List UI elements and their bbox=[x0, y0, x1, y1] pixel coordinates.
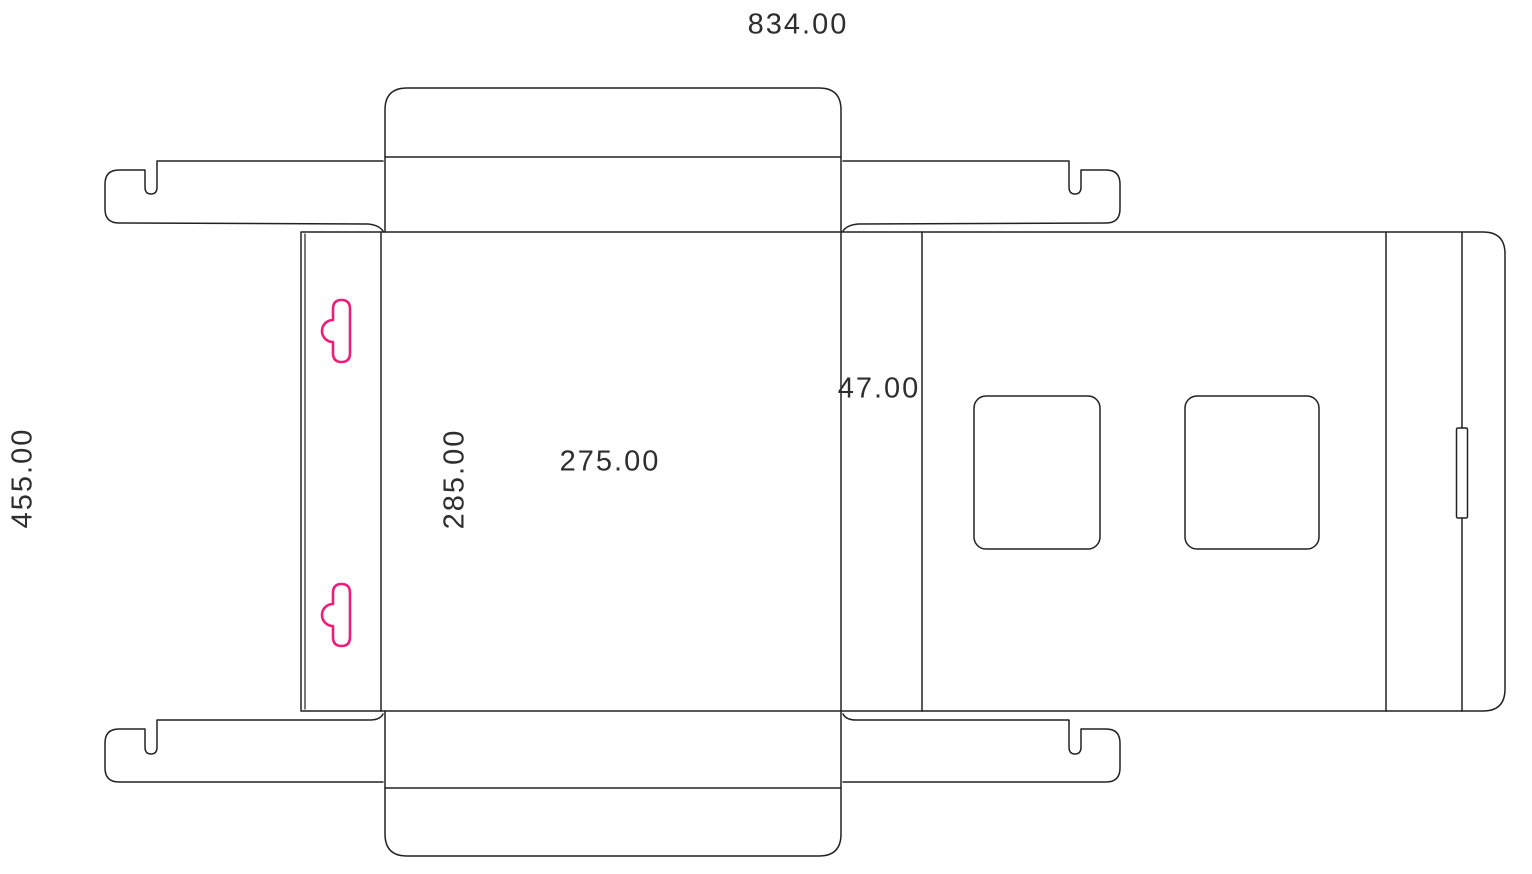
dimension-label-overall-width: 834.00 bbox=[748, 9, 849, 42]
box-dieline-svg bbox=[0, 0, 1532, 874]
window-cutout-2 bbox=[1185, 396, 1319, 549]
dimension-label-left-panel-height: 285.00 bbox=[439, 429, 472, 530]
dimension-label-main-panel-width: 275.00 bbox=[560, 446, 661, 479]
top-left-dust-flap bbox=[105, 161, 383, 231]
tuck-lock-slot bbox=[1457, 428, 1468, 518]
bottom-left-dust-flap bbox=[105, 714, 383, 782]
bottom-right-dust-flap bbox=[843, 714, 1120, 782]
dimension-label-overall-height: 455.00 bbox=[7, 428, 40, 529]
box-dieline bbox=[105, 88, 1505, 856]
window-cutout-1 bbox=[974, 396, 1100, 549]
body-outline bbox=[301, 232, 1505, 711]
hang-slot-bottom bbox=[322, 584, 350, 646]
dieline-drawing-canvas: 834.00 455.00 285.00 275.00 47.00 bbox=[0, 0, 1532, 874]
top-right-dust-flap bbox=[843, 161, 1120, 231]
top-tuck-flap bbox=[385, 88, 841, 232]
hang-slot-top bbox=[322, 300, 350, 362]
dimension-label-side-strip-width: 47.00 bbox=[838, 373, 921, 406]
bottom-tuck-flap bbox=[385, 711, 841, 856]
